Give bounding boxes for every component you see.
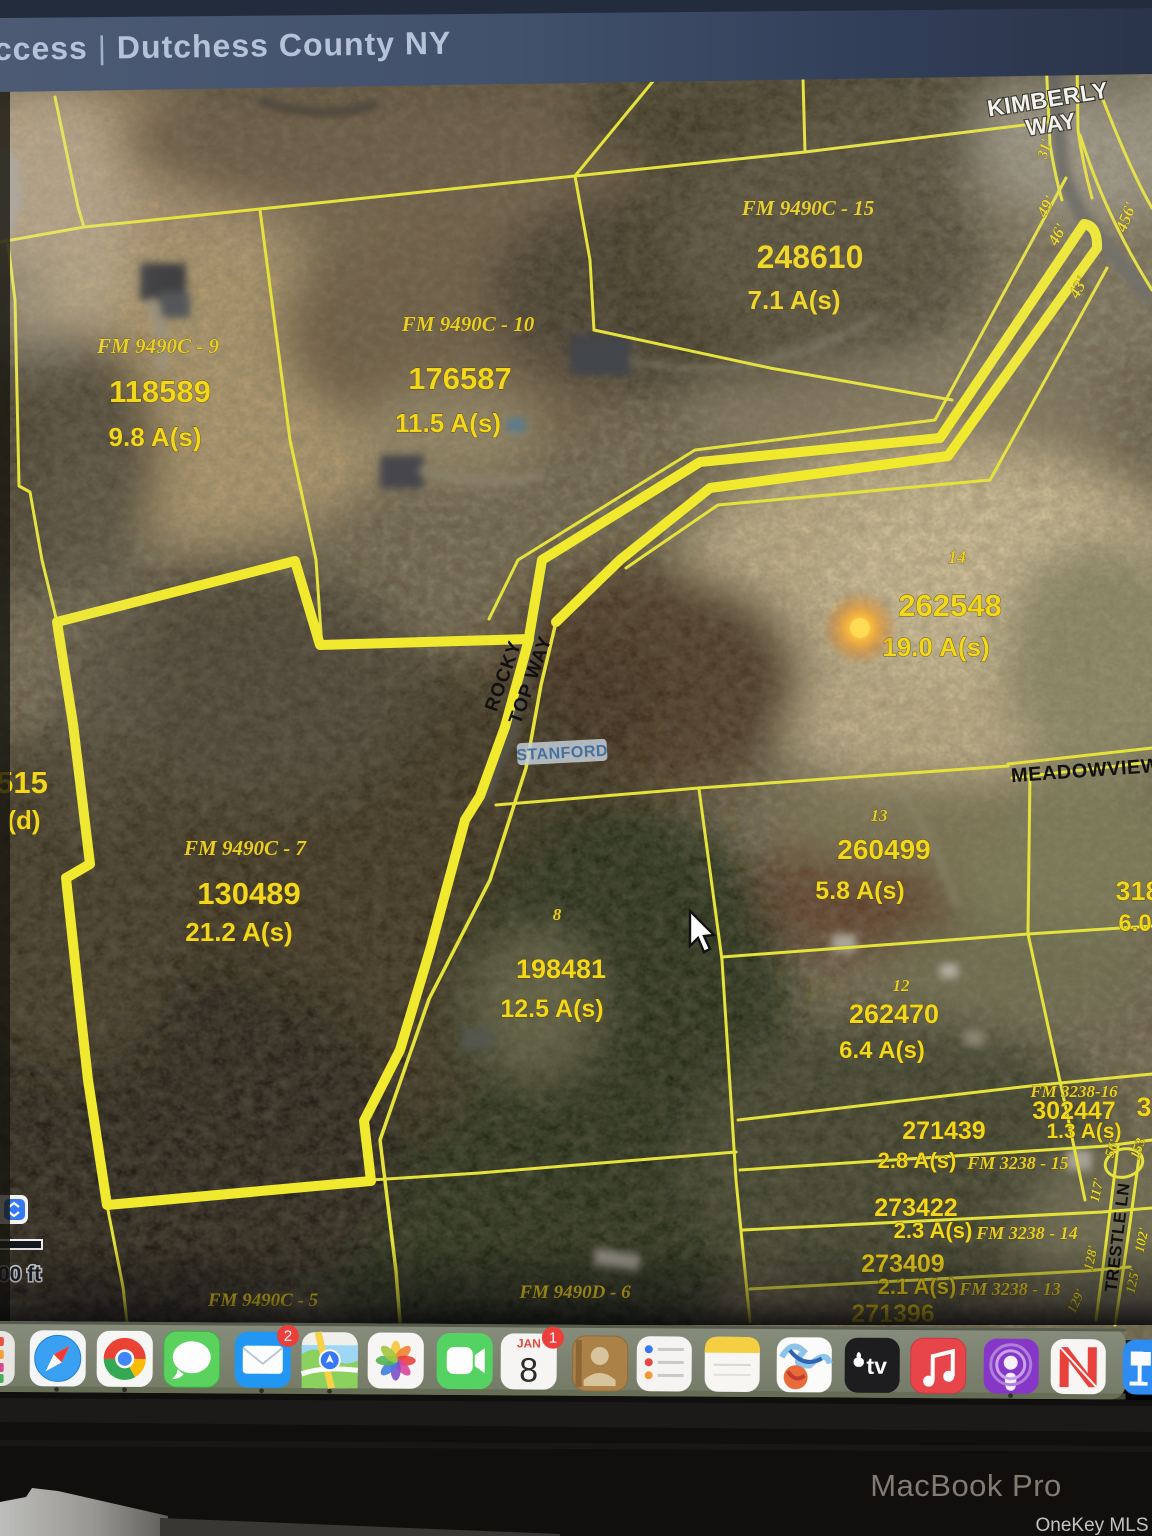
svg-text:3: 3 (1136, 1092, 1151, 1122)
svg-text:OneKey MLS: OneKey MLS (1036, 1515, 1149, 1536)
svg-text:19.0 A(s): 19.0 A(s) (882, 632, 989, 662)
svg-text:2.3 A(s): 2.3 A(s) (894, 1218, 973, 1243)
svg-text:8: 8 (519, 1351, 538, 1389)
svg-text:5.8 A(s): 5.8 A(s) (815, 877, 904, 905)
svg-text:tv: tv (866, 1353, 887, 1379)
svg-text:198481: 198481 (516, 954, 606, 984)
svg-text:ccess | Dutchess County NY: ccess | Dutchess County NY (0, 25, 452, 67)
svg-text:2.8 A(s): 2.8 A(s) (878, 1148, 957, 1173)
svg-text:130489: 130489 (197, 876, 300, 911)
svg-text:FM 9490C - 10: FM 9490C - 10 (401, 312, 535, 336)
svg-text:12.5 A(s): 12.5 A(s) (500, 995, 603, 1023)
svg-text:14: 14 (948, 547, 966, 567)
svg-text:260499: 260499 (837, 834, 930, 865)
svg-text:176587: 176587 (408, 361, 511, 396)
svg-text:FM 3238 - 15: FM 3238 - 15 (966, 1153, 1069, 1173)
svg-text:13: 13 (871, 806, 889, 825)
svg-text:262548: 262548 (898, 588, 1001, 623)
svg-text:318: 318 (1115, 876, 1152, 906)
svg-text:21.2 A(s): 21.2 A(s) (185, 917, 292, 947)
svg-text:262470: 262470 (849, 999, 939, 1029)
svg-text:1: 1 (549, 1330, 557, 1347)
svg-text:271439: 271439 (902, 1117, 985, 1145)
svg-text:12: 12 (893, 976, 911, 995)
svg-text:JAN: JAN (517, 1336, 541, 1350)
svg-text:8: 8 (553, 905, 562, 924)
svg-text:118589: 118589 (109, 374, 211, 409)
svg-text:2: 2 (284, 1328, 292, 1345)
svg-text:MacBook Pro: MacBook Pro (870, 1468, 1062, 1503)
svg-text:11.5 A(s): 11.5 A(s) (395, 408, 501, 438)
svg-text:FM 9490C - 9: FM 9490C - 9 (96, 334, 219, 358)
svg-text:(d): (d) (7, 805, 40, 835)
svg-text:6.0: 6.0 (1118, 910, 1151, 937)
svg-text:FM 9490C - 7: FM 9490C - 7 (183, 836, 307, 860)
svg-text:6.4 A(s): 6.4 A(s) (839, 1037, 925, 1064)
